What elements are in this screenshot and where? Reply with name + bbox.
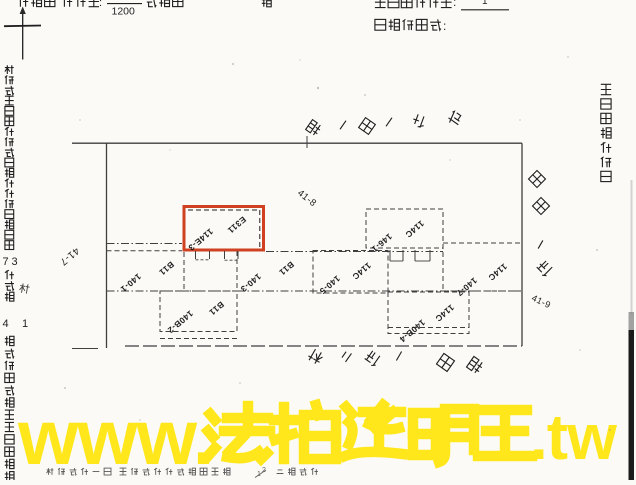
svg-text:114C: 114C [403,218,426,239]
svg-text:2: 2 [262,467,266,474]
svg-text:140B-4: 140B-4 [398,317,428,344]
svg-text:1200: 1200 [112,6,136,18]
svg-text:41-8: 41-8 [295,188,318,210]
svg-text:1: 1 [482,0,488,7]
svg-text:140-7: 140-7 [455,275,480,298]
svg-text:114C: 114C [350,260,373,281]
svg-text:4: 4 [3,318,9,330]
svg-text:1: 1 [22,318,28,330]
svg-text::: : [99,0,102,9]
svg-text:114C: 114C [486,261,509,282]
svg-text:3: 3 [12,256,18,268]
svg-text:7: 7 [3,256,9,268]
svg-text::: : [453,0,456,9]
svg-text:41-9: 41-9 [530,293,552,311]
svg-text:E311: E311 [226,214,249,235]
svg-text:B11: B11 [157,259,176,277]
svg-text:B11: B11 [277,259,296,277]
svg-text:.tw: .tw [530,401,617,473]
svg-text::: : [443,19,446,33]
svg-text:140-5: 140-5 [318,273,343,296]
svg-text:www.: www. [17,393,213,480]
svg-text:114C: 114C [433,302,456,323]
svg-text:41-7: 41-7 [57,245,81,268]
svg-text:B11: B11 [207,299,226,317]
